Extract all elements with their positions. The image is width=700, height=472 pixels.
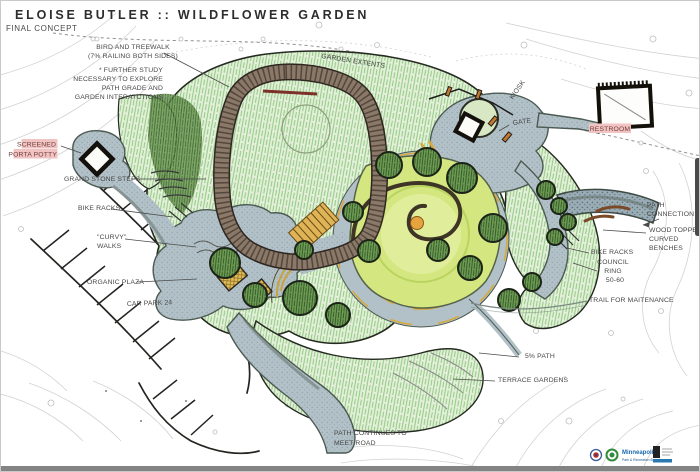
svg-text:CURVED: CURVED <box>649 236 678 243</box>
label-wood-benches: WOOD TOPPED <box>649 227 700 234</box>
label-organic-plaza: ORGANIC PLAZA <box>87 279 144 286</box>
svg-text:GARDEN INTERATCTIONS: GARDEN INTERATCTIONS <box>75 94 164 101</box>
label-curvy-walks: "CURVY" <box>97 234 127 241</box>
site-plan-svg: ELOISE BUTLER :: WILDFLOWER GARDEN FINAL… <box>1 1 700 472</box>
label-bird-treewalk: BIRD AND TREEWALK <box>96 44 170 51</box>
scrollbar-thumb[interactable] <box>695 158 700 236</box>
subtitle: FINAL CONCEPT <box>6 24 78 33</box>
svg-text:CONNECTION: CONNECTION <box>647 211 694 218</box>
label-bike-racks-left: BIKE RACKS <box>78 205 121 212</box>
label-bike-racks-right: BIKE RACKS <box>591 249 634 256</box>
svg-text:RING: RING <box>604 268 622 275</box>
label-further-study: * FURTHER STUDY <box>99 67 163 74</box>
bottom-bar <box>1 466 700 472</box>
label-grand-stone-steps: GRAND STONE STEPS <box>64 176 141 183</box>
footer-logos: Minneapolis Park & Recreation Board <box>591 446 674 463</box>
page-title: ELOISE BUTLER :: WILDFLOWER GARDEN <box>15 8 369 22</box>
svg-text:BENCHES: BENCHES <box>649 245 683 252</box>
svg-text:PORTA POTTY: PORTA POTTY <box>8 152 57 159</box>
svg-text:MEET ROAD: MEET ROAD <box>334 440 376 447</box>
svg-text:50-60: 50-60 <box>606 277 624 284</box>
label-5pct-path: 5% PATH <box>525 353 555 360</box>
label-path-continues: PATH CONTINUES TO <box>334 430 407 437</box>
restroom-structure <box>598 83 652 129</box>
partner-logo <box>653 446 673 463</box>
footer-org-name: Minneapolis <box>622 450 657 456</box>
label-council-ring: COUNCIL <box>597 259 629 266</box>
label-trail-maintenance: TRAIL FOR MAITENANCE <box>589 297 674 304</box>
council-ring-center <box>411 217 424 230</box>
label-terrace-gardens: TERRACE GARDENS <box>498 377 569 384</box>
label-porta-potty: SCREENED <box>17 142 56 149</box>
svg-text:WALKS: WALKS <box>97 243 122 250</box>
svg-text:(7% RAILING BOTH SIDES): (7% RAILING BOTH SIDES) <box>88 53 178 60</box>
window: ELOISE BUTLER :: WILDFLOWER GARDEN FINAL… <box>0 0 700 472</box>
label-restroom: RESTROOM <box>590 126 631 133</box>
svg-text:PATH GRADE AND: PATH GRADE AND <box>102 85 163 92</box>
svg-text:NECESSARY TO EXPLORE: NECESSARY TO EXPLORE <box>73 76 163 83</box>
label-path-connection: PATH <box>647 202 665 209</box>
